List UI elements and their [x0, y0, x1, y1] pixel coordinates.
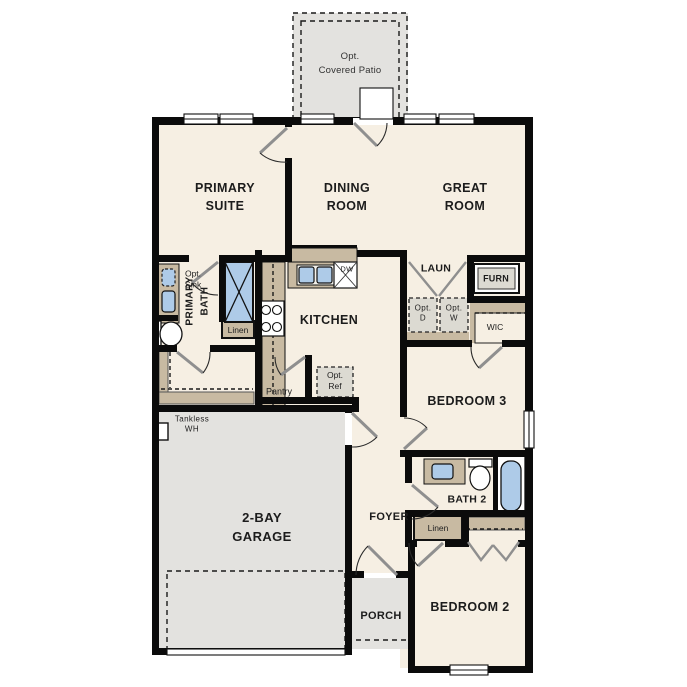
label-bath2: BATH 2: [448, 492, 487, 507]
wall-linen-bottom-b: [445, 540, 469, 547]
label-dining-room: DINING ROOM: [324, 179, 370, 215]
label-bedroom3: BEDROOM 3: [427, 392, 506, 410]
floor-plan: Opt. Covered Patio PRIMARY SUITE DINING …: [0, 0, 687, 687]
wall-bed3-top-a: [407, 340, 472, 347]
garage-door-opening: [167, 649, 345, 655]
wall-greatroom-bottom: [467, 255, 533, 262]
wall-bath-wic-b: [210, 345, 255, 352]
label-foyer: FOYER: [369, 510, 408, 526]
label-dishwasher: DW: [340, 265, 353, 276]
wall-suite-bottom-a: [152, 255, 189, 262]
wall-bath-kitchen: [255, 250, 262, 405]
label-opt-dryer: Opt. D: [415, 304, 432, 325]
label-bedroom2: BEDROOM 2: [430, 598, 509, 616]
kitchen-sink-left: [299, 267, 314, 283]
primary-toilet-bowl: [160, 322, 182, 346]
label-kitchen: KITCHEN: [300, 311, 358, 329]
wall-garage-right-a: [345, 405, 352, 413]
floorplan-drawing: [0, 0, 687, 687]
wall-center-spine: [400, 250, 407, 417]
label-porch: PORCH: [360, 609, 401, 625]
wall-front-a: [352, 571, 364, 578]
label-linen-primary: Linen: [228, 324, 249, 336]
bath2-toilet-bowl: [470, 466, 490, 490]
wall-furn-bottom: [467, 296, 533, 303]
kitchen-peninsula-counter: [288, 248, 357, 262]
wall-bathhall-shower: [219, 262, 225, 322]
wall-bed3-top-b: [502, 340, 533, 347]
wall-kitchen-top-stub: [357, 250, 407, 257]
label-laundry: LAUN: [421, 261, 451, 276]
label-tankless-wh: Tankless WH: [175, 415, 209, 436]
wall-tub-divider: [493, 456, 498, 510]
wall-pantry-right: [305, 355, 312, 402]
wall-left: [152, 117, 159, 655]
wall-suite-dining-stub: [285, 117, 292, 127]
wall-garage-top: [152, 405, 352, 412]
wall-toilet-nook: [152, 315, 178, 321]
label-opt-washer: Opt. W: [446, 304, 463, 325]
label-furnace: FURN: [483, 272, 509, 285]
bathtub: [501, 461, 521, 511]
label-pantry: Pantry: [266, 385, 292, 398]
opt-sink-fixture: [162, 269, 175, 286]
wall-laun-furn: [467, 255, 474, 303]
wall-bed3-bottom: [400, 450, 533, 457]
wall-garage-right-b: [345, 445, 352, 655]
wall-right: [525, 117, 533, 673]
patio-step: [360, 88, 393, 119]
wall-foyer-corner: [352, 397, 359, 412]
label-linen-bath2: Linen: [428, 522, 449, 534]
label-opt-sink: Opt. Sink: [185, 269, 202, 292]
wic-left-shelf-bottom: [159, 392, 254, 404]
label-opt-ref: Opt. Ref: [327, 370, 343, 392]
label-wic-right: WIC: [487, 321, 504, 333]
bath2-sink: [432, 464, 453, 479]
primary-sink-fixture: [162, 291, 175, 312]
bedroom2-closet-shelf: [464, 517, 525, 530]
wall-suite-dining: [285, 158, 292, 257]
kitchen-sink-right: [317, 267, 332, 283]
label-opt-covered-patio: Opt. Covered Patio: [319, 50, 382, 78]
label-primary-suite: PRIMARY SUITE: [195, 179, 255, 215]
wall-closet-bottom-stub: [518, 540, 533, 547]
wall-bath-wic-a: [152, 345, 177, 352]
label-great-room: GREAT ROOM: [443, 179, 488, 215]
label-patio-line1: Opt.: [319, 50, 382, 64]
foyer-floor: [352, 397, 408, 573]
label-patio-line2: Covered Patio: [319, 64, 382, 78]
label-garage: 2-BAY GARAGE: [232, 509, 291, 547]
wall-front-b: [396, 571, 408, 578]
wall-bath2-left-a: [405, 450, 412, 483]
